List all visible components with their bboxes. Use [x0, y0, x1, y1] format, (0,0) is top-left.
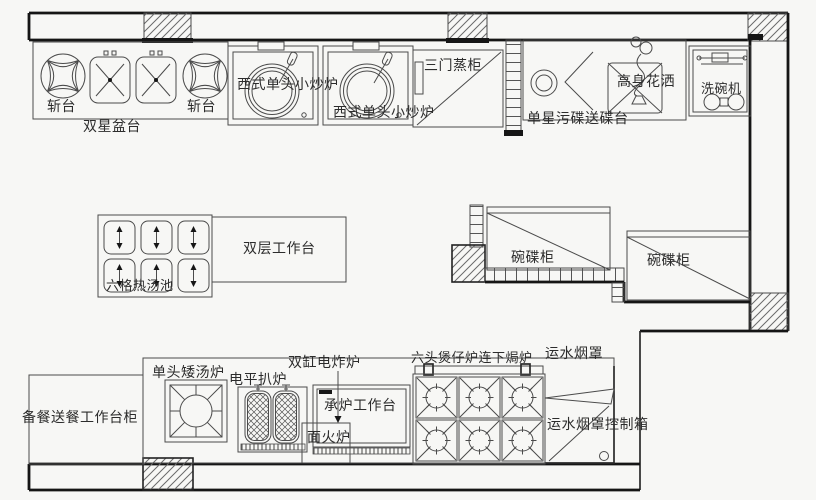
- label-tall-spray: 高身花洒: [617, 74, 675, 89]
- label-wok-stove-2: 西式单头小炒炉: [333, 105, 435, 120]
- chopping-block-symbol: [183, 54, 227, 98]
- label-stove-stand-table: 承炉工作台: [324, 398, 397, 413]
- chopping-block-symbol: [41, 54, 85, 98]
- top-wall: [29, 13, 788, 43]
- label-dish-cabinet-1: 碗碟柜: [511, 250, 555, 265]
- label-double-sink-table: 双星盆台: [83, 119, 141, 134]
- double-fryer-symbol: [238, 385, 307, 452]
- label-salamander: 面火炉: [307, 430, 351, 445]
- right-wall: [640, 13, 788, 332]
- label-steam-cabinet: 三门蒸柜: [424, 58, 482, 73]
- six-burner-range-symbol: [413, 364, 545, 464]
- label-dish-cabinet-2: 碗碟柜: [647, 253, 691, 268]
- stock-pot-stove-symbol: [165, 380, 227, 442]
- label-double-worktable: 双层工作台: [243, 241, 316, 256]
- label-chopping-table-right: 斩台: [187, 99, 216, 114]
- label-double-fryer: 双缸电炸炉: [288, 355, 361, 370]
- sink-basin-symbol: [90, 51, 130, 103]
- label-prep-serving-cabinet: 备餐送餐工作台柜: [22, 410, 138, 425]
- kitchen-floor-plan: 斩台 斩台 双星盆台 西式单头小炒炉 西式单头小炒炉 三门蒸柜 单星污碟送碟台 …: [0, 0, 816, 500]
- label-six-burner-range: 六头煲仔炉连下焗炉: [411, 351, 533, 365]
- label-water-hood: 运水烟罩: [545, 346, 603, 361]
- label-electric-griddle: 电平扒炉: [229, 372, 287, 387]
- label-hood-control-box: 运水烟罩控制箱: [547, 417, 649, 432]
- sink-basin-symbol: [136, 51, 176, 103]
- hood-leader-arrow: [545, 389, 614, 404]
- label-six-soup-pool: 六格热汤池: [106, 279, 174, 293]
- label-stock-pot-stove: 单头矮汤炉: [152, 365, 225, 380]
- label-wok-stove-1: 西式单头小炒炉: [237, 77, 339, 92]
- label-dishwasher: 洗碗机: [701, 82, 742, 96]
- label-chopping-table-left: 斩台: [47, 99, 76, 114]
- interior-wall: [452, 40, 750, 302]
- label-soiled-dish-table: 单星污碟送碟台: [527, 111, 629, 126]
